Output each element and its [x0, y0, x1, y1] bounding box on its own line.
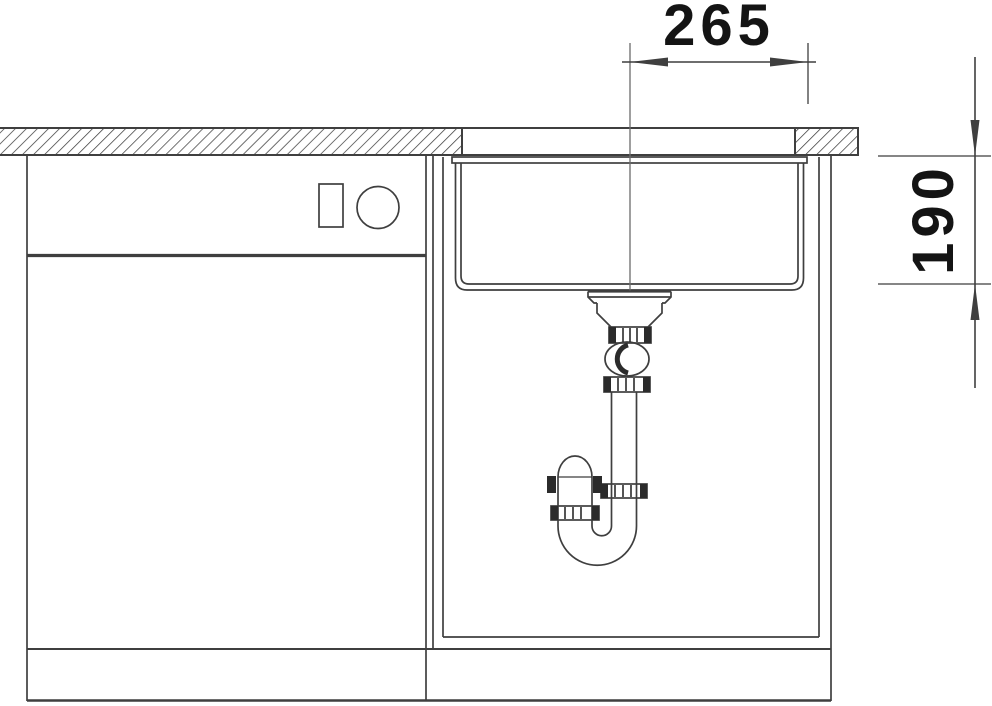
nut-end-cap [551, 506, 558, 520]
nut-end-cap [592, 506, 599, 520]
sink-installation-cross-section: 265 190 [0, 0, 992, 706]
dimension-label-265: 265 [663, 0, 775, 58]
dome-side-tab [547, 476, 556, 493]
nut-end-cap [601, 484, 608, 498]
dimension-label-190: 190 [901, 163, 966, 275]
countertop-hatch-right [795, 129, 858, 155]
dome-side-tab [593, 476, 602, 493]
technical-drawing-page: 265 190 [0, 0, 992, 706]
drawing-background [0, 0, 992, 706]
nut-end-cap [604, 377, 611, 392]
nut-end-cap [643, 377, 650, 392]
countertop-hatch-left [0, 129, 462, 155]
nut-end-cap [644, 327, 651, 343]
nut-end-cap [609, 327, 616, 343]
nut-end-cap [640, 484, 647, 498]
